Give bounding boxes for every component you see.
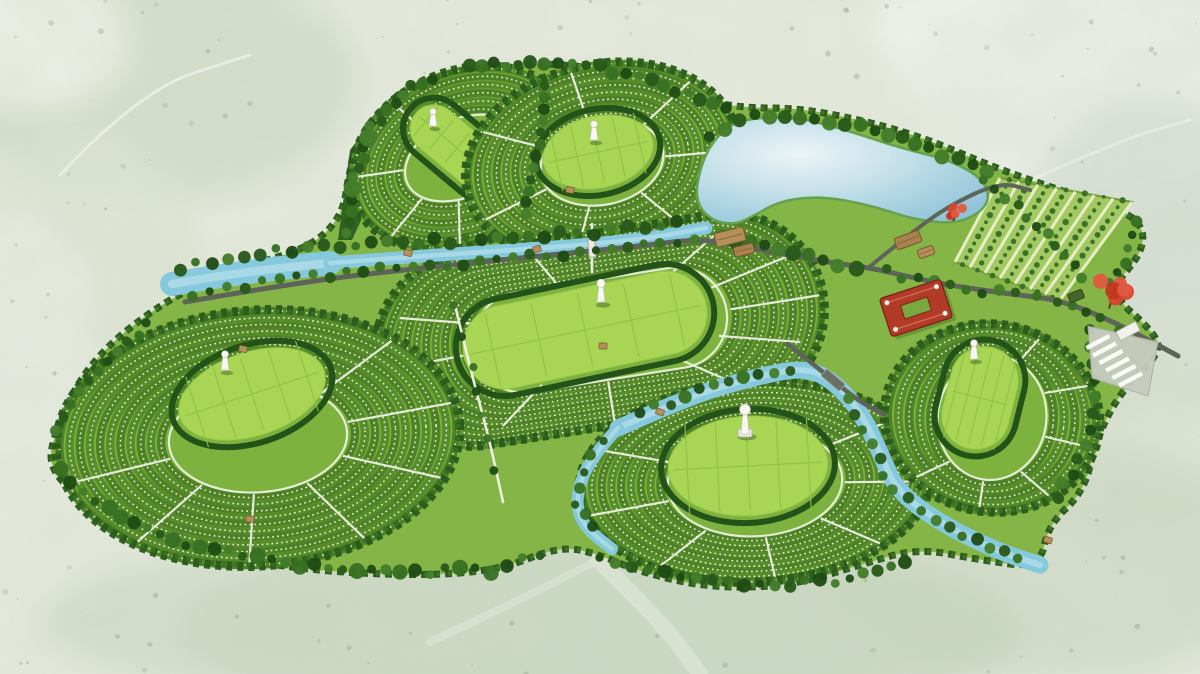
tree — [405, 80, 415, 90]
tree — [324, 564, 333, 573]
background-speckle — [1069, 648, 1073, 652]
orchard-tree — [1045, 184, 1049, 188]
background-speckle — [843, 7, 848, 12]
background-speckle — [789, 26, 794, 31]
tree — [914, 273, 924, 283]
orchard-tree — [1100, 225, 1106, 231]
orchard-tree — [964, 255, 968, 259]
tree — [870, 125, 881, 136]
tree — [875, 453, 886, 464]
orchard-tree — [987, 246, 993, 252]
tree — [574, 482, 585, 493]
background-speckle — [67, 565, 71, 569]
background-speckle — [1137, 83, 1140, 86]
background-speckle — [1031, 33, 1034, 36]
tree — [520, 196, 532, 208]
tree — [53, 461, 68, 476]
tree — [489, 466, 498, 475]
tree — [717, 122, 732, 137]
tree — [723, 575, 733, 585]
orchard-tree — [1014, 265, 1018, 269]
orchard-tree — [1090, 240, 1095, 245]
tree — [849, 261, 865, 277]
tree — [513, 60, 523, 70]
background-speckle — [1095, 518, 1099, 522]
tree — [857, 425, 867, 435]
tree — [639, 222, 652, 235]
tree — [398, 90, 408, 100]
tree — [1128, 231, 1136, 239]
orchard-tree — [1082, 190, 1088, 196]
tree — [968, 159, 979, 170]
tree — [785, 366, 795, 376]
statue-head — [590, 121, 597, 128]
tree — [192, 539, 207, 554]
tree — [416, 78, 428, 90]
tree — [475, 233, 488, 246]
background-speckle — [1081, 160, 1084, 163]
tree — [1011, 288, 1020, 297]
tree — [338, 565, 347, 574]
background-speckle — [629, 32, 632, 35]
tree — [225, 545, 234, 554]
background-speckle — [871, 648, 876, 653]
orchard-tree — [1054, 234, 1059, 239]
statue-head — [221, 351, 228, 358]
tree — [971, 533, 984, 546]
orchard-tree — [1032, 205, 1037, 210]
orchard-tree — [1028, 244, 1033, 249]
tree — [127, 516, 141, 530]
background-speckle — [933, 31, 938, 36]
tree — [472, 387, 481, 396]
background-speckle — [317, 639, 321, 643]
tree — [769, 368, 779, 378]
tree — [945, 280, 954, 289]
tree — [538, 115, 549, 126]
orchard-tree — [1105, 218, 1110, 223]
tree — [771, 242, 786, 257]
tree — [635, 71, 644, 80]
tree — [896, 274, 906, 284]
background-speckle — [11, 299, 15, 303]
background-speckle — [2, 589, 8, 595]
tree — [258, 276, 266, 284]
tree — [408, 563, 422, 577]
tree — [508, 252, 517, 261]
tree — [452, 560, 468, 576]
tree — [1043, 228, 1054, 239]
tree — [654, 238, 665, 249]
aerial-masterplan-render — [0, 0, 1200, 674]
tree — [358, 152, 370, 164]
tree — [778, 110, 792, 124]
tree — [475, 59, 488, 72]
tree — [843, 393, 854, 404]
tree — [898, 555, 912, 569]
orchard-tree — [1001, 225, 1005, 229]
orchard-tree — [1022, 250, 1028, 256]
tree — [141, 318, 150, 327]
tree — [753, 369, 764, 380]
tree — [587, 521, 598, 532]
tree — [1085, 425, 1096, 436]
tree — [165, 532, 181, 548]
tree — [673, 239, 681, 247]
orchard-tree — [1007, 246, 1012, 251]
tree — [1071, 453, 1082, 464]
tree — [66, 399, 76, 409]
tree — [121, 336, 131, 346]
tree — [540, 81, 549, 90]
tree — [588, 229, 601, 242]
orchard-tree — [987, 212, 993, 218]
orchard-tree — [1045, 215, 1051, 221]
background-speckle — [104, 207, 107, 210]
background-speckle — [1115, 595, 1117, 597]
tree — [785, 245, 801, 261]
tree — [275, 273, 286, 284]
tree — [345, 217, 355, 227]
tree — [1032, 222, 1041, 231]
tree — [380, 564, 391, 575]
tree — [580, 468, 588, 476]
tree — [581, 60, 591, 70]
tree — [749, 109, 760, 120]
tree — [502, 62, 511, 71]
tree — [521, 208, 532, 219]
background-speckle — [1185, 363, 1188, 366]
tree — [658, 565, 672, 579]
background-speckle — [46, 292, 50, 296]
tree — [622, 242, 633, 253]
orchard-tree — [990, 273, 996, 279]
tree — [187, 291, 198, 302]
tree — [50, 425, 61, 436]
orchard-tree — [1060, 281, 1064, 285]
orchard-tree — [1088, 215, 1092, 219]
tree — [1053, 493, 1064, 504]
orchard-tree — [979, 260, 984, 265]
background-speckle — [223, 113, 228, 118]
background-speckle — [900, 7, 902, 9]
tree — [507, 232, 520, 245]
tree — [1068, 470, 1079, 481]
background-speckle — [120, 164, 125, 169]
orchard-tree — [1036, 197, 1042, 203]
tree — [471, 563, 480, 572]
background-speckle — [655, 634, 659, 638]
tree — [359, 129, 377, 147]
tree — [640, 239, 648, 247]
tree — [706, 573, 718, 585]
background-speckle — [44, 316, 47, 319]
background-speckle — [367, 662, 369, 664]
blossom-cluster — [1093, 274, 1108, 289]
orchard-tree — [1005, 217, 1010, 222]
background-speckle — [447, 51, 450, 54]
tree — [800, 575, 810, 585]
tree — [424, 260, 435, 271]
background-speckle — [14, 243, 17, 246]
tree — [605, 222, 617, 234]
blossom-cluster — [951, 210, 960, 219]
tree — [694, 383, 705, 394]
background-speckle — [206, 49, 211, 54]
tree — [348, 172, 358, 182]
tree — [923, 142, 934, 153]
orchard-tree — [1055, 202, 1059, 206]
statue-shadow — [590, 141, 602, 145]
tree — [643, 565, 653, 575]
orchard-tree — [995, 267, 999, 271]
tree — [539, 92, 550, 103]
tree — [392, 564, 407, 579]
tree — [444, 237, 457, 250]
background-speckle — [984, 45, 990, 51]
tree — [426, 570, 435, 579]
background-speckle — [14, 35, 17, 38]
tree — [952, 151, 966, 165]
background-speckle — [456, 23, 459, 26]
background-speckle — [142, 667, 148, 673]
background-speckle — [1134, 624, 1140, 630]
tree — [580, 509, 591, 520]
background-speckle — [115, 634, 120, 639]
orchard-tree — [1025, 180, 1031, 186]
background-speckle — [869, 649, 871, 651]
background-speckle — [557, 25, 562, 30]
tree — [477, 412, 484, 419]
tree — [571, 500, 579, 508]
orchard-tree — [1050, 208, 1056, 214]
tree — [457, 332, 466, 341]
tree — [934, 149, 949, 164]
tree — [1060, 251, 1069, 260]
tree — [1087, 408, 1098, 419]
tree — [302, 241, 314, 253]
tree — [610, 558, 621, 569]
tree — [543, 252, 551, 260]
tree — [886, 561, 896, 571]
tree — [1032, 291, 1042, 301]
background-speckle — [189, 121, 194, 126]
tree — [558, 250, 570, 262]
orchard-tree — [1041, 222, 1046, 227]
tree — [292, 271, 300, 279]
tree — [684, 88, 693, 97]
orchard-tree — [999, 260, 1003, 264]
orchard-tree — [1064, 188, 1069, 193]
tree — [491, 231, 503, 243]
background-speckle — [1053, 117, 1055, 119]
tree — [427, 232, 441, 246]
orchard-tree — [1049, 269, 1054, 274]
tree — [280, 557, 291, 568]
tree — [1050, 241, 1060, 251]
tree — [916, 506, 926, 516]
tree — [666, 400, 676, 410]
tree — [364, 121, 374, 131]
tree — [1089, 391, 1101, 403]
background-speckle — [722, 662, 728, 668]
tree — [854, 118, 868, 132]
orchard-tree — [980, 227, 984, 231]
tree — [759, 239, 770, 250]
tree — [871, 565, 883, 577]
statue-head — [597, 279, 605, 287]
tree — [181, 541, 190, 550]
orchard-tree — [1010, 272, 1014, 276]
background-speckle — [217, 39, 220, 42]
orchard-tree — [1044, 248, 1049, 253]
tree — [1014, 200, 1024, 210]
tree — [208, 542, 222, 556]
statue-shadow — [429, 127, 440, 131]
background-speckle — [1121, 555, 1126, 560]
orchard-tree — [1059, 227, 1063, 231]
orchard-tree — [1069, 213, 1073, 217]
tree — [334, 241, 347, 254]
tree — [344, 180, 362, 198]
tree — [657, 222, 666, 231]
tree — [254, 249, 267, 262]
tree — [351, 242, 360, 251]
tree — [573, 228, 582, 237]
background-speckle — [1153, 52, 1157, 56]
tree — [979, 175, 988, 184]
orchard-tree — [1059, 194, 1064, 199]
tree — [595, 554, 603, 562]
tree — [79, 487, 88, 496]
tree — [724, 377, 734, 387]
background-speckle — [346, 645, 351, 650]
tree — [720, 102, 732, 114]
tree — [1071, 260, 1080, 269]
tree — [676, 573, 684, 581]
hut-building — [246, 516, 255, 523]
tree — [537, 231, 551, 245]
background-speckle — [864, 578, 868, 582]
tree — [733, 113, 747, 127]
statue-shadow — [970, 360, 982, 364]
tree — [704, 131, 715, 142]
background-speckle — [1183, 199, 1186, 202]
tree — [678, 390, 691, 403]
tree — [222, 282, 231, 291]
tree — [1131, 216, 1143, 228]
tree — [961, 285, 971, 295]
tree — [568, 59, 577, 68]
hut-building — [238, 345, 247, 353]
tree — [957, 531, 967, 541]
blossom-cluster — [958, 204, 967, 213]
tree — [143, 523, 152, 532]
tree — [528, 163, 539, 174]
tree — [802, 248, 816, 262]
background-speckle — [98, 28, 104, 34]
orchard-tree — [1003, 253, 1007, 257]
background-speckle — [1119, 570, 1124, 575]
tree — [341, 228, 351, 238]
orchard-tree — [1116, 205, 1120, 209]
tree — [944, 521, 955, 532]
tree — [592, 246, 600, 254]
hut-building — [599, 343, 607, 349]
tree — [670, 215, 683, 228]
tree — [380, 104, 392, 116]
background-speckle — [1089, 19, 1094, 24]
tree — [346, 205, 358, 217]
tree — [1123, 244, 1132, 253]
tree — [357, 266, 369, 278]
orchard-tree — [1092, 208, 1096, 212]
orchard-tree — [1040, 256, 1044, 260]
tree — [94, 367, 104, 377]
tree — [240, 283, 251, 294]
background-speckle — [153, 593, 158, 598]
tree — [669, 86, 681, 98]
tree — [59, 413, 69, 423]
tree — [1021, 213, 1030, 222]
orchard-tree — [1119, 197, 1125, 203]
tree — [90, 497, 99, 506]
background-speckle — [141, 11, 144, 14]
tree — [396, 236, 409, 249]
tree — [483, 566, 498, 581]
background-speckle — [1050, 146, 1055, 151]
tree — [206, 257, 219, 270]
orchard-tree — [1017, 195, 1022, 200]
tree — [762, 110, 777, 125]
background-speckle — [25, 366, 28, 369]
tree — [409, 262, 418, 271]
orchard-tree — [1095, 232, 1101, 238]
tree — [536, 128, 545, 137]
orchard-tree — [1019, 258, 1024, 263]
orchard-tree — [1082, 221, 1088, 227]
tree — [523, 55, 537, 69]
background-speckle — [1085, 560, 1087, 562]
tree — [317, 239, 330, 252]
tree — [458, 260, 470, 272]
orchard-tree — [1097, 202, 1101, 206]
tree — [518, 553, 527, 562]
tree — [449, 301, 457, 309]
tree — [249, 548, 265, 564]
tree — [831, 579, 840, 588]
tree — [463, 59, 477, 73]
tree — [878, 471, 888, 481]
tree — [809, 114, 820, 125]
tree — [1113, 268, 1121, 276]
tree — [206, 287, 214, 295]
hut-building — [403, 249, 412, 257]
tree — [367, 565, 376, 574]
background-speckle — [409, 632, 412, 635]
tree — [349, 563, 365, 579]
orchard-tree — [996, 231, 1002, 237]
tree — [606, 67, 619, 80]
tree — [286, 246, 299, 259]
background-speckle — [1102, 556, 1106, 560]
orchard-tree — [1079, 253, 1085, 259]
orchard-tree — [984, 254, 988, 258]
tree — [74, 386, 85, 397]
tree — [903, 492, 914, 503]
background-speckle — [884, 4, 889, 9]
tree — [63, 476, 77, 490]
